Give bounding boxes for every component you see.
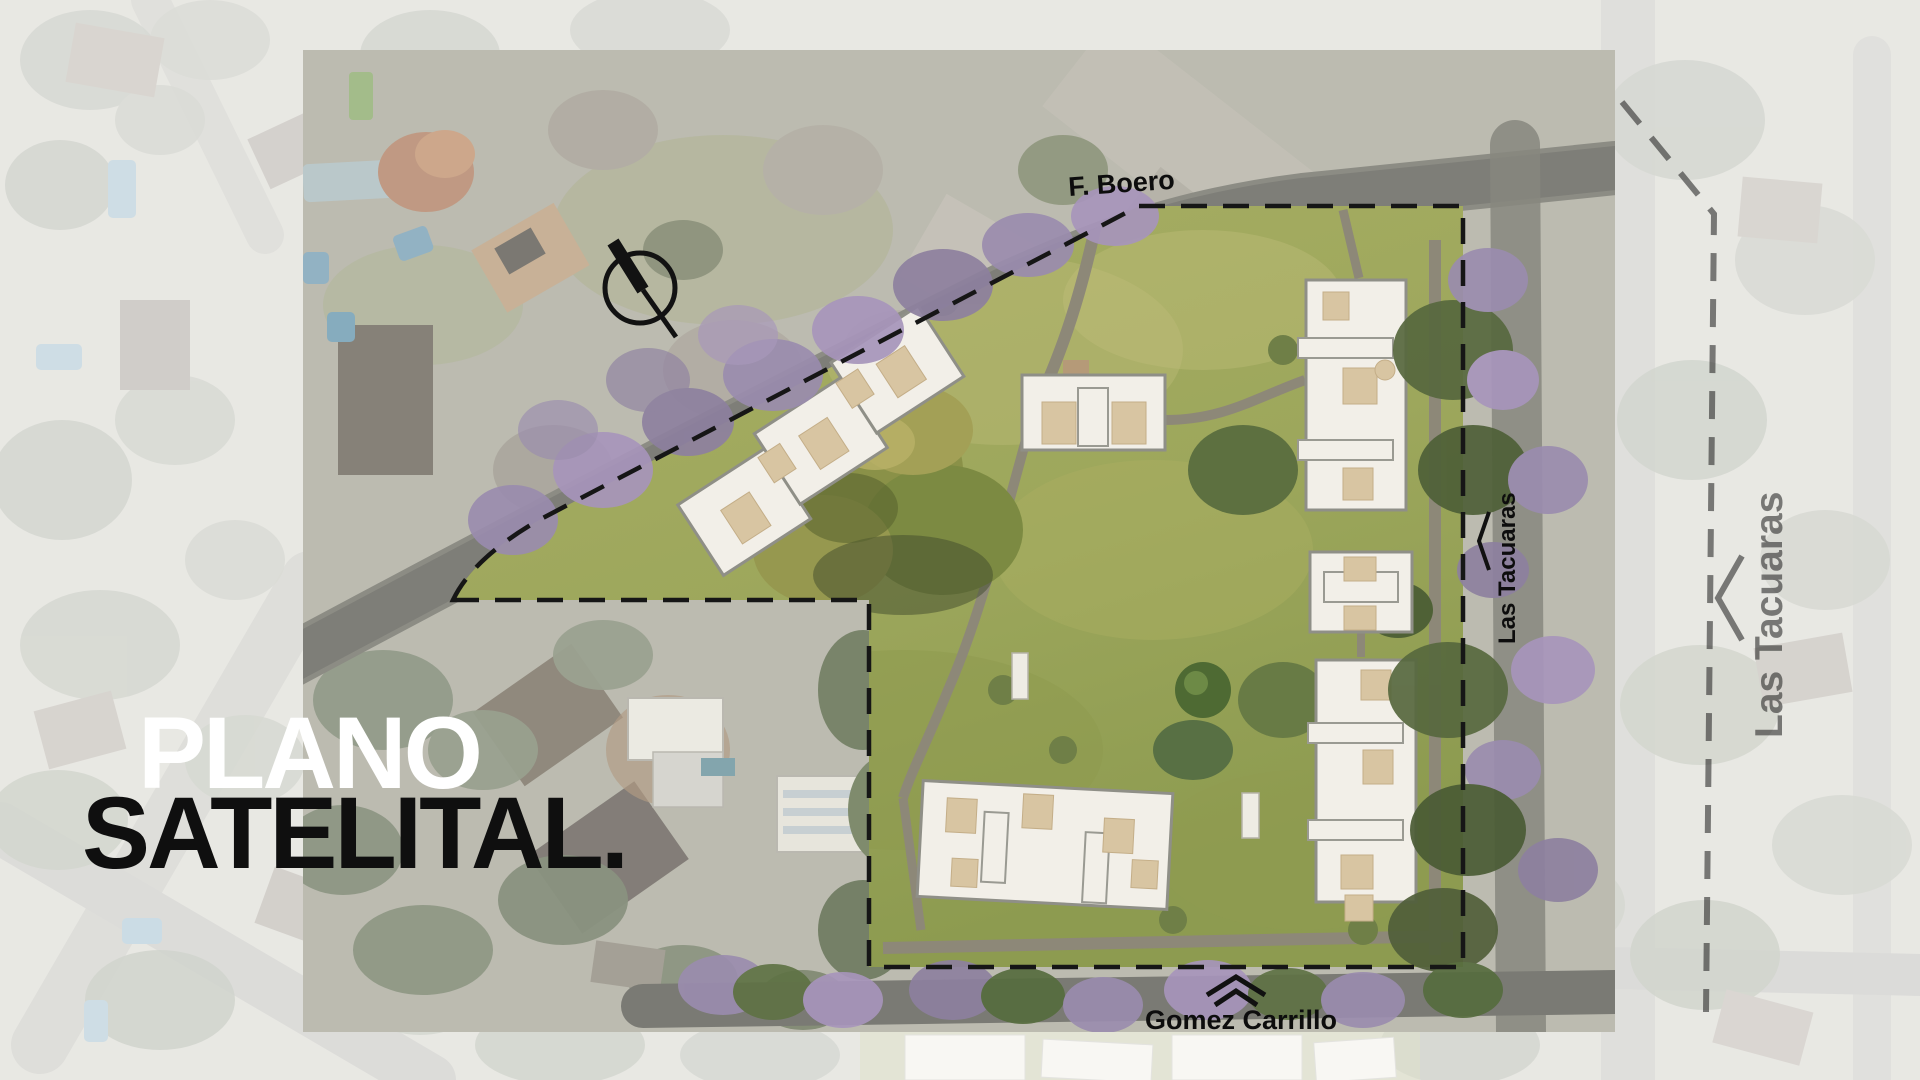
slide: Las Tacuaras [0, 0, 1920, 1080]
garden-deck [1242, 793, 1259, 838]
building-north [1022, 360, 1165, 450]
street-direction-chevron-icon [1718, 556, 1742, 640]
street-label-las-tacuaras-outer: Las Tacuaras [1748, 492, 1791, 738]
street-label-gomez-carrillo: Gomez Carrillo [1145, 1005, 1337, 1032]
street-label-las-tacuaras-inner: Las Tacuaras [1494, 492, 1521, 644]
outer-boundary-dashed-line [1622, 102, 1714, 1012]
garden-deck [1012, 653, 1028, 699]
building-northeast [1298, 280, 1406, 510]
masterplan-inset: F. Boero Las Tacuaras Gomez Carrillo [303, 50, 1615, 1032]
building-east-small [1310, 552, 1412, 632]
building-south [917, 781, 1173, 910]
